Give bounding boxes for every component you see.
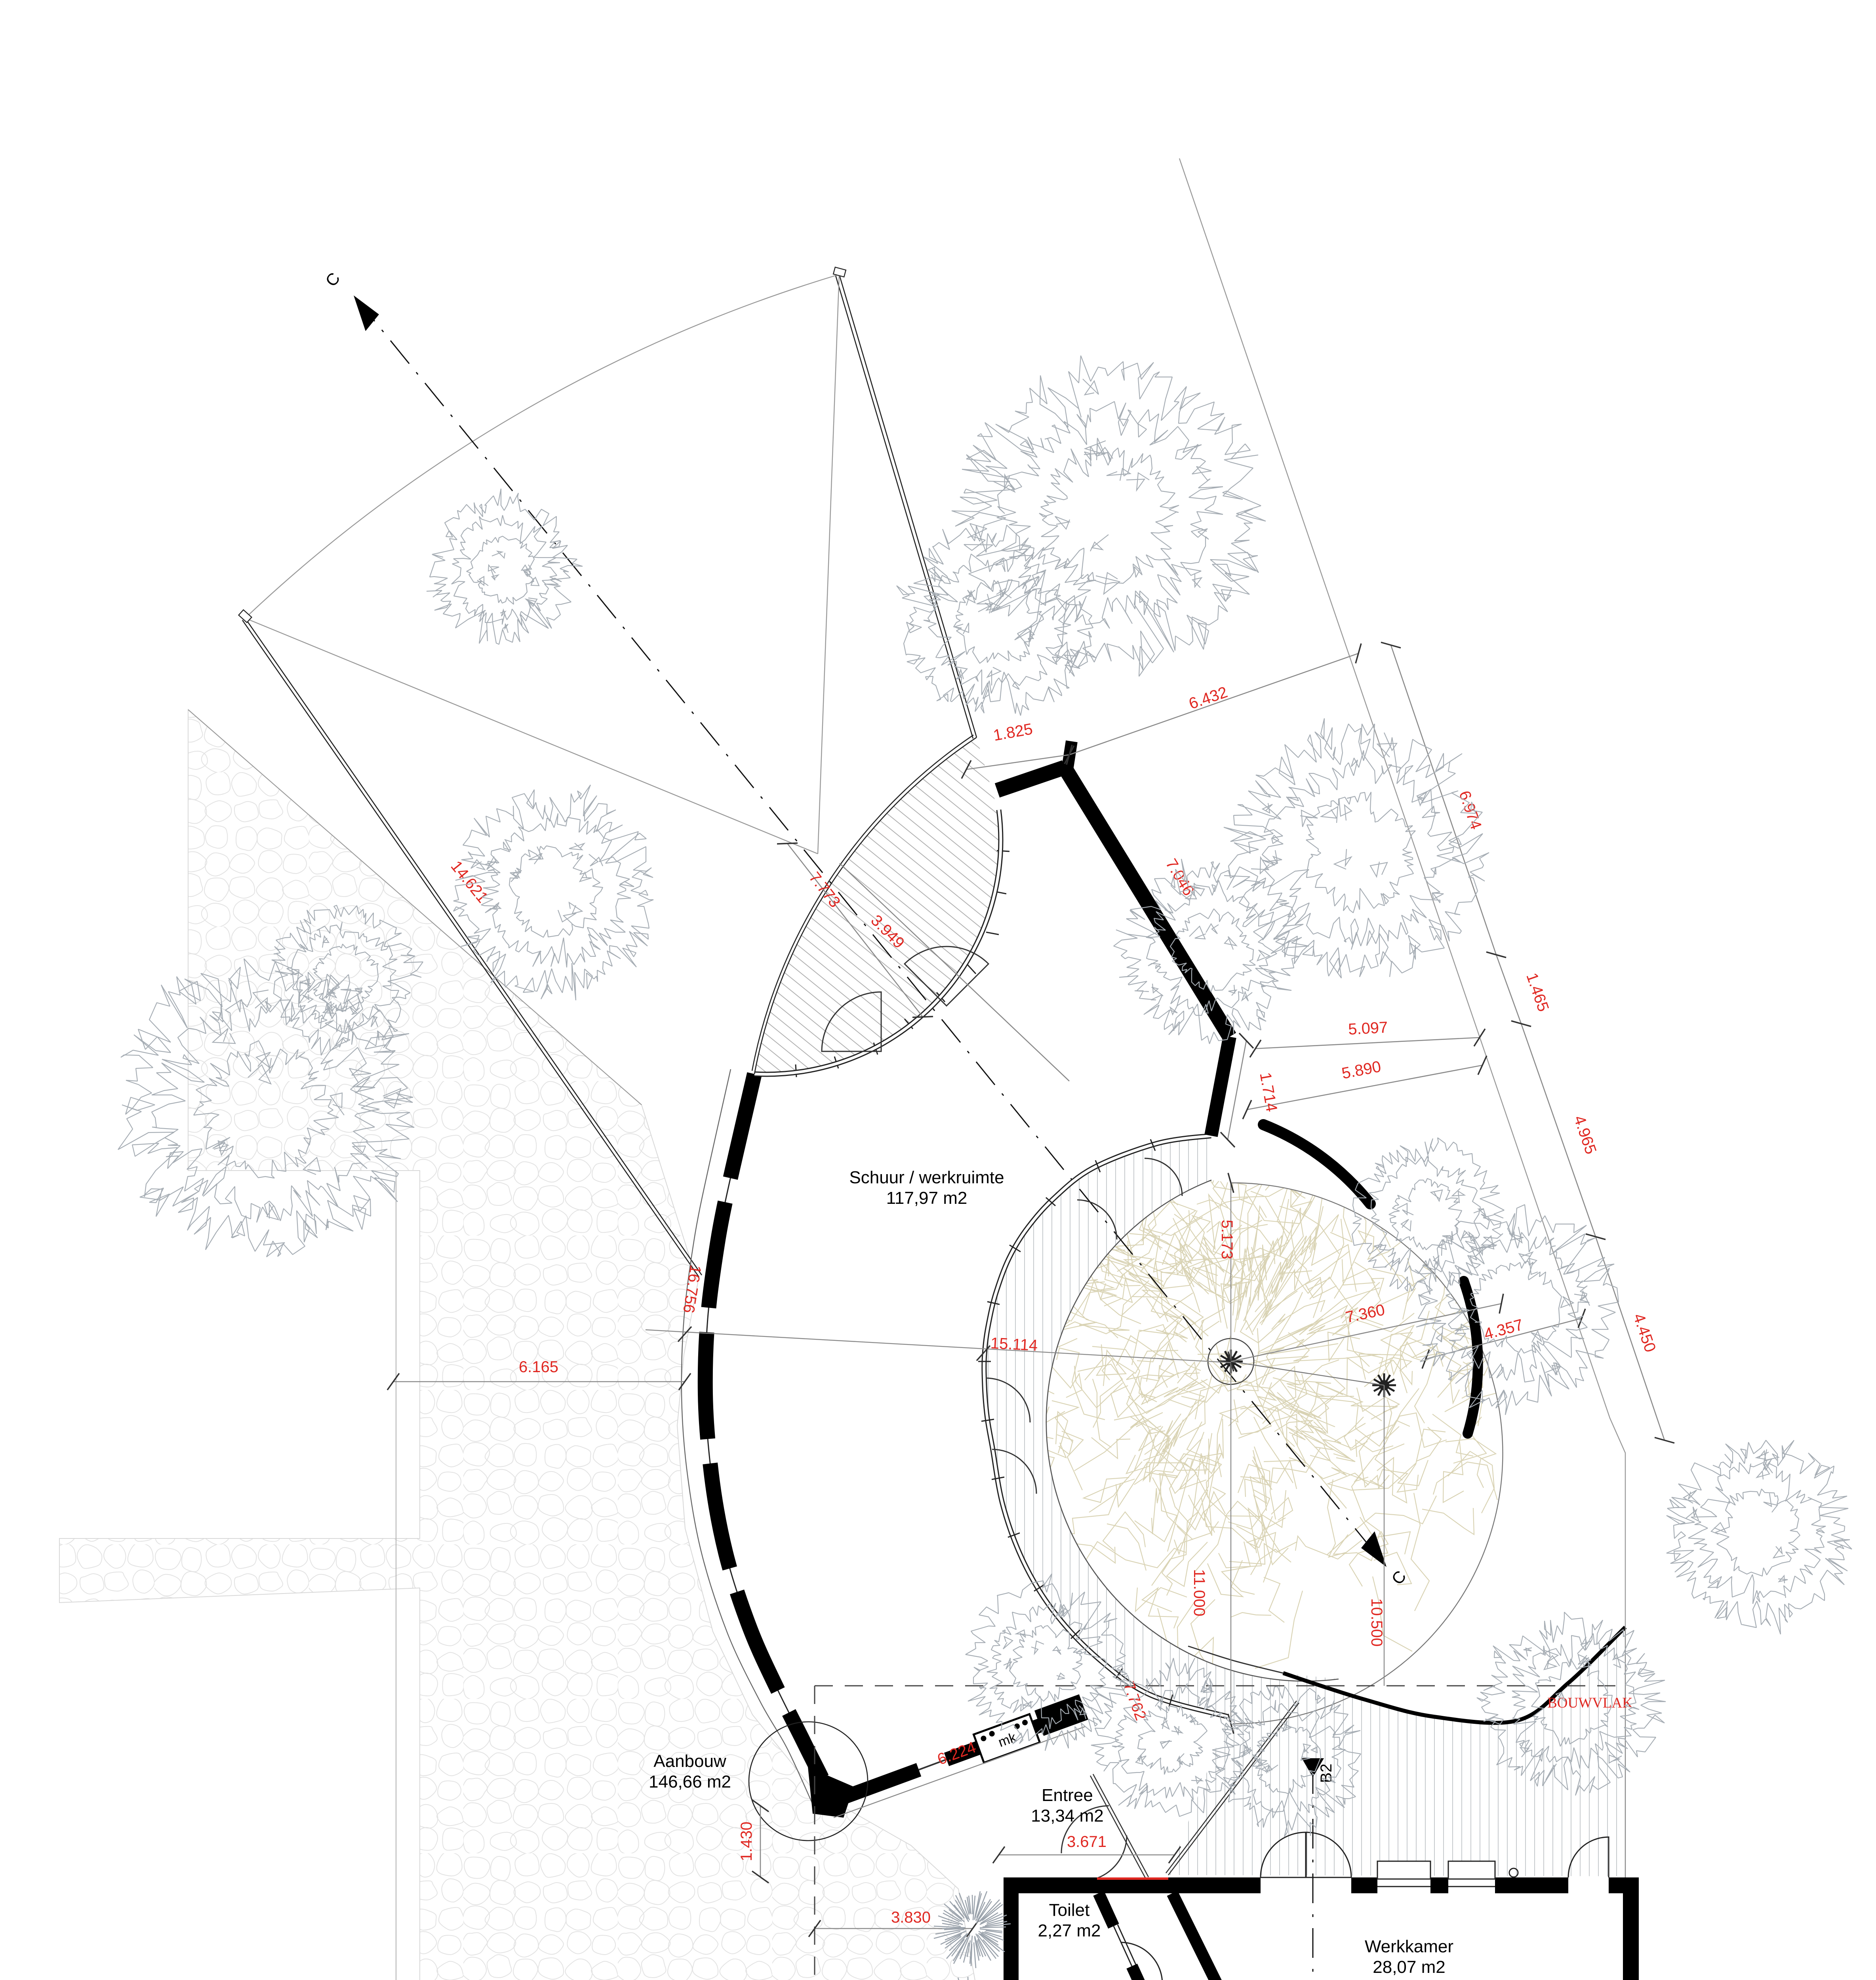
svg-text:146,66 m2: 146,66 m2 (649, 1772, 731, 1792)
svg-text:15.114: 15.114 (990, 1335, 1038, 1354)
svg-text:Schuur / werkruimte: Schuur / werkruimte (849, 1168, 1004, 1187)
svg-text:13,34 m2: 13,34 m2 (1031, 1806, 1103, 1826)
svg-text:6.165: 6.165 (519, 1358, 558, 1376)
svg-text:28,07 m2: 28,07 m2 (1373, 1957, 1445, 1977)
svg-text:Werkkamer: Werkkamer (1365, 1937, 1453, 1956)
svg-text:5.173: 5.173 (1218, 1220, 1236, 1259)
svg-text:Toilet: Toilet (1049, 1900, 1090, 1920)
svg-text:5.097: 5.097 (1348, 1019, 1388, 1038)
svg-text:3.830: 3.830 (891, 1909, 931, 1926)
svg-text:2,27 m2: 2,27 m2 (1038, 1921, 1101, 1940)
svg-text:1.430: 1.430 (738, 1822, 755, 1861)
svg-text:3.671: 3.671 (1067, 1833, 1107, 1851)
svg-text:11.000: 11.000 (1190, 1569, 1208, 1616)
svg-text:10.500: 10.500 (1368, 1598, 1385, 1647)
svg-text:Entree: Entree (1042, 1786, 1093, 1805)
svg-text:Aanbouw: Aanbouw (653, 1752, 726, 1771)
svg-text:117,97 m2: 117,97 m2 (886, 1188, 968, 1208)
